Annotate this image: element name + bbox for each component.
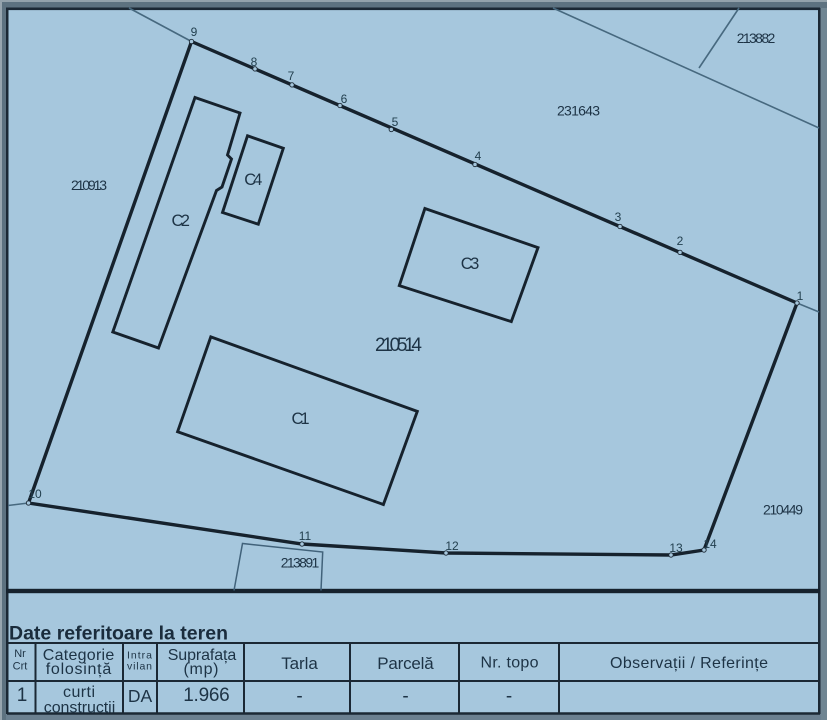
svg-text:9: 9 [191, 25, 198, 39]
svg-text:curti: curti [63, 684, 95, 701]
svg-text:4: 4 [475, 149, 482, 163]
svg-text:1.966: 1.966 [183, 685, 230, 706]
svg-text:210514: 210514 [375, 335, 422, 356]
svg-text:3: 3 [615, 210, 622, 224]
svg-text:(mp): (mp) [184, 661, 219, 678]
svg-text:14: 14 [703, 537, 717, 551]
svg-text:Parcelă: Parcelă [377, 654, 434, 673]
svg-text:6: 6 [341, 92, 348, 106]
svg-text:12: 12 [445, 539, 459, 553]
svg-text:213882: 213882 [737, 30, 776, 46]
svg-text:1: 1 [17, 685, 28, 706]
svg-text:Observații / Referințe: Observații / Referințe [610, 655, 768, 672]
svg-text:DA: DA [128, 686, 153, 706]
svg-text:210913: 210913 [71, 177, 107, 193]
svg-text:11: 11 [299, 529, 312, 543]
svg-text:C1: C1 [292, 410, 310, 428]
svg-text:constructii: constructii [44, 700, 116, 717]
svg-text:folosință: folosință [46, 661, 112, 678]
svg-text:C2: C2 [171, 212, 190, 230]
svg-text:210449: 210449 [763, 502, 803, 518]
svg-text:Crt: Crt [13, 661, 28, 673]
svg-text:-: - [506, 686, 512, 707]
svg-text:-: - [296, 686, 302, 707]
svg-text:C4: C4 [244, 171, 262, 189]
svg-text:Nr. topo: Nr. topo [481, 655, 539, 672]
svg-text:7: 7 [288, 69, 295, 83]
svg-text:vilan: vilan [127, 661, 152, 673]
svg-text:1: 1 [797, 289, 804, 303]
svg-text:213891: 213891 [281, 555, 320, 571]
svg-text:231643: 231643 [557, 103, 600, 119]
svg-text:2: 2 [677, 234, 684, 248]
svg-text:10: 10 [28, 487, 42, 501]
svg-text:8: 8 [251, 55, 258, 69]
svg-text:13: 13 [669, 541, 683, 555]
svg-text:Tarla: Tarla [281, 654, 318, 673]
svg-text:Date referitoare la teren: Date referitoare la teren [9, 623, 228, 645]
svg-text:5: 5 [392, 115, 399, 129]
svg-text:-: - [402, 686, 408, 707]
svg-text:C3: C3 [461, 255, 480, 273]
svg-text:Nr: Nr [14, 648, 26, 660]
